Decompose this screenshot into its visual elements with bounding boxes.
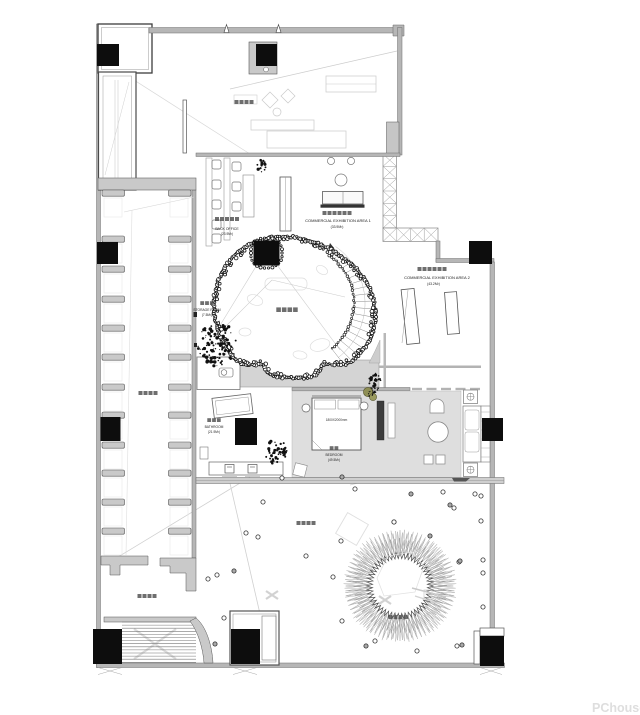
svg-text:COMMERCIAL EXHIBITION AREA 2: COMMERCIAL EXHIBITION AREA 2 (404, 275, 470, 280)
svg-text:STORAGE ROOM: STORAGE ROOM (193, 308, 220, 312)
svg-text:BATHROOM: BATHROOM (205, 425, 224, 429)
svg-text:(49.5M²): (49.5M²) (328, 458, 340, 462)
svg-text:BACK OFFICE: BACK OFFICE (215, 227, 239, 231)
svg-text:COMMERCIAL EXHIBITION AREA 1: COMMERCIAL EXHIBITION AREA 1 (305, 218, 371, 223)
svg-text:(21.9M²): (21.9M²) (208, 430, 220, 434)
svg-text:(43.2M²): (43.2M²) (427, 282, 440, 286)
svg-text:1800X2000mm: 1800X2000mm (326, 418, 348, 422)
svg-text:(23.9M²): (23.9M²) (221, 232, 233, 236)
svg-text:PChouse: PChouse (592, 701, 640, 715)
svg-text:(7.5M²): (7.5M²) (202, 313, 212, 317)
svg-text:(33.9M²): (33.9M²) (331, 225, 344, 229)
svg-text:BEDROOM: BEDROOM (325, 453, 342, 457)
